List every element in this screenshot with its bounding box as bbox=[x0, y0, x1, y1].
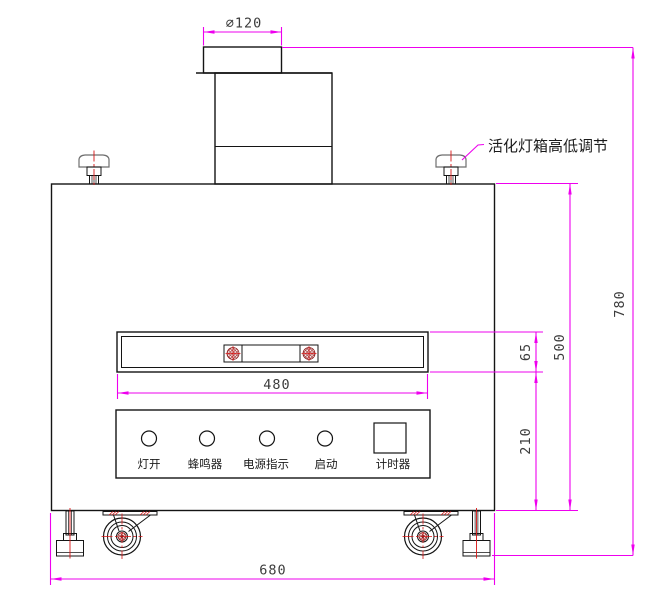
control-panel: 灯开 蜂鸣器 电源指示 启动 计时器 bbox=[116, 410, 430, 478]
dim-upper-height: 500 bbox=[552, 333, 568, 360]
timer-label: 计时器 bbox=[376, 457, 411, 471]
caster-wheel-right bbox=[403, 512, 459, 560]
buzzer-indicator bbox=[200, 431, 215, 446]
lamp-box-adjust-note: 活化灯箱高低调节 bbox=[488, 137, 608, 155]
dimension-lines bbox=[51, 27, 634, 585]
lamp-on-label: 灯开 bbox=[138, 457, 161, 471]
exhaust-pipe bbox=[204, 47, 282, 73]
height-adjust-knob-left bbox=[79, 151, 109, 186]
dim-pipe-diameter: ∅120 bbox=[226, 16, 263, 32]
lamp-slot-window bbox=[117, 332, 428, 372]
leveling-foot-left bbox=[57, 508, 84, 559]
power-indicator bbox=[260, 431, 275, 446]
start-label: 启动 bbox=[315, 457, 338, 471]
technical-drawing: 灯开 蜂鸣器 电源指示 启动 计时器 ∅120 48 bbox=[0, 0, 646, 610]
height-adjust-knob-right bbox=[436, 151, 466, 186]
lamp-tube-holder bbox=[224, 345, 318, 362]
dim-lower-height: 210 bbox=[518, 427, 534, 454]
lamp-housing-chimney bbox=[196, 73, 332, 184]
buzzer-label: 蜂鸣器 bbox=[188, 457, 223, 471]
drawing-canvas: 灯开 蜂鸣器 电源指示 启动 计时器 ∅120 48 bbox=[0, 0, 646, 610]
dim-slot-height: 65 bbox=[518, 343, 534, 361]
leveling-foot-right bbox=[463, 508, 490, 559]
dim-overall-height: 780 bbox=[612, 290, 628, 317]
power-label: 电源指示 bbox=[243, 457, 289, 471]
dim-overall-width: 680 bbox=[259, 563, 286, 579]
timer-display bbox=[374, 423, 406, 453]
dim-slot-width: 480 bbox=[263, 377, 290, 393]
lamp-on-indicator bbox=[142, 431, 157, 446]
start-indicator bbox=[318, 431, 333, 446]
caster-wheel-left bbox=[102, 512, 158, 560]
